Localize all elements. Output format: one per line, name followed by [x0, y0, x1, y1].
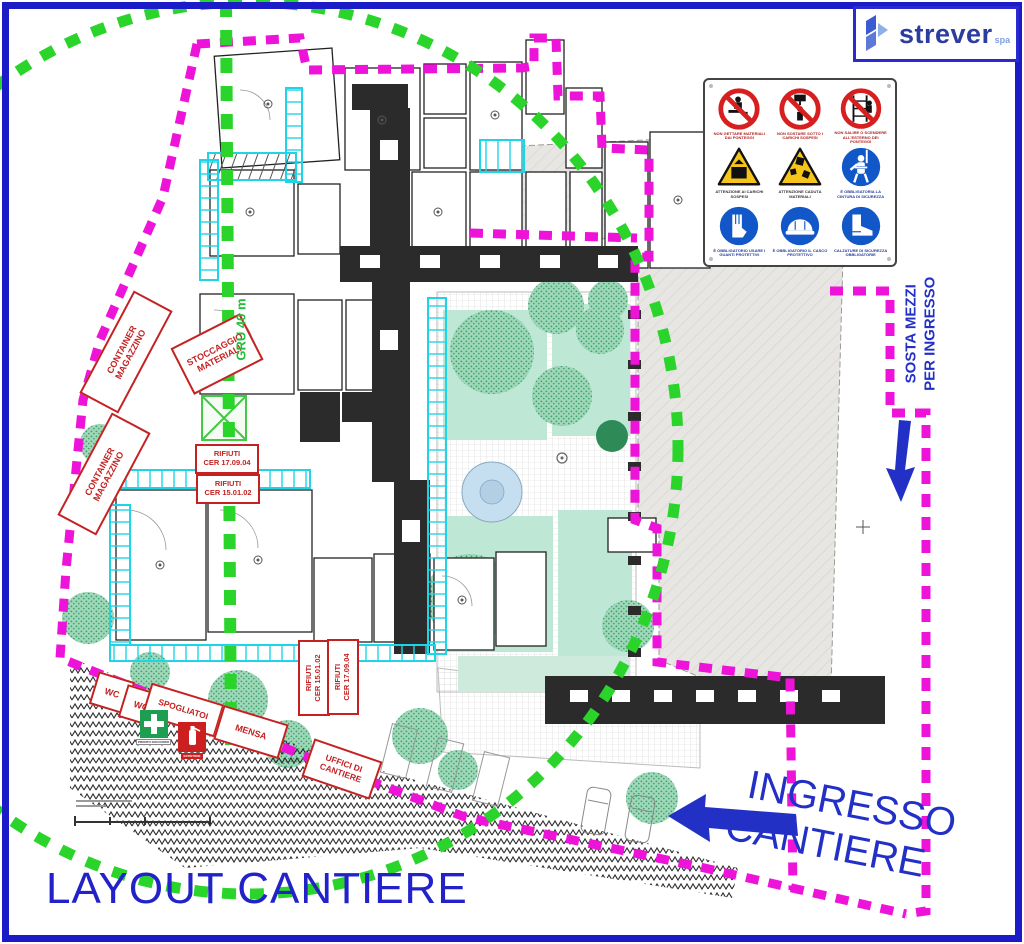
label-line: SOSTA MEZZI [902, 271, 921, 397]
sign-caption: ATTENZIONE CADUTA MATERIALI [771, 190, 829, 199]
safety-signs-panel: NON GETTARE MATERIALI DAI PONTEGGI NON S… [703, 78, 897, 267]
label-line: MENSA [234, 722, 268, 741]
label-rifiuti-17-09-04-b: RIFIUTI CER 17.09.04 [327, 639, 359, 715]
mandatory-gloves-icon [716, 203, 762, 249]
label-line: WC [103, 686, 120, 700]
fountain-pool [462, 462, 522, 522]
sign-caption: CALZATURE DI SICUREZZA OBBLIGATORIE [832, 249, 890, 258]
sign-warn-falling-materials: ATTENZIONE CADUTA MATERIALI [770, 144, 831, 202]
first-aid-cross-icon [140, 710, 168, 738]
dark-tree [596, 420, 628, 452]
logo-suffix-text: spa [995, 35, 1011, 45]
sign-no-stand-under-loads: NON SOSTARE SOTTO I CARICHI SOSPESI [770, 86, 831, 144]
page-title: LAYOUT CANTIERE [46, 864, 468, 914]
label-line: CER 15.01.02 [314, 654, 323, 701]
label-gru-40m: GRU 40 m [234, 285, 249, 375]
sign-no-climb: NON SALIRE O SCENDERE ALL'ESTERNO DEI PO… [830, 86, 891, 144]
sign-warn-suspended-loads: ATTENZIONE AI CARICHI SOSPESI [709, 144, 770, 202]
sign-caption: È OBBLIGATORIA LA CINTURA DI SICUREZZA [832, 190, 890, 199]
survey-cross [856, 520, 870, 534]
parking-arrow [886, 420, 915, 502]
sign-caption: È OBBLIGATORIO USARE I GUANTI PROTETTIVI [710, 249, 768, 258]
label-rifiuti-17-09-04: RIFIUTI CER 17.09.04 [195, 444, 259, 474]
company-logo: strever spa [853, 6, 1019, 62]
first-aid-sign: PRONTO SOCCORSO [136, 710, 171, 745]
extinguisher-icon [178, 722, 206, 752]
logo-brand-text: strever [899, 19, 993, 50]
prohibition-suspended-load-icon [777, 86, 823, 132]
sign-gloves-required: È OBBLIGATORIO USARE I GUANTI PROTETTIVI [709, 203, 770, 261]
sign-caption: ATTENZIONE AI CARICHI SOSPESI [710, 190, 768, 199]
label-line: PER INGRESSO [921, 271, 940, 397]
label-sosta-mezzi: SOSTA MEZZI PER INGRESSO [902, 271, 940, 397]
prohibition-climb-icon [838, 86, 884, 131]
mandatory-helmet-icon [777, 203, 823, 249]
first-aid-label: PRONTO SOCCORSO [136, 739, 171, 745]
warning-loads-icon [716, 144, 762, 190]
label-line: CER 17.09.04 [203, 459, 250, 468]
label-line: CER 17.09.04 [343, 653, 352, 700]
strever-logo-icon [864, 15, 894, 53]
mandatory-harness-icon [838, 144, 884, 190]
mandatory-boots-icon [838, 203, 884, 249]
sign-caption: NON SOSTARE SOTTO I CARICHI SOSPESI [771, 132, 829, 141]
label-rifiuti-15-01-02: RIFIUTI CER 15.01.02 [196, 474, 260, 504]
label-rifiuti-15-01-02-b: RIFIUTI CER 15.01.02 [298, 640, 330, 716]
prohibition-throw-icon [716, 86, 762, 132]
sign-harness-required: È OBBLIGATORIA LA CINTURA DI SICUREZZA [830, 144, 891, 202]
label-line: CER 15.01.02 [204, 489, 251, 498]
warning-falling-material-icon [777, 144, 823, 190]
sign-caption: È OBBLIGATORIO IL CASCO PROTETTIVO [771, 249, 829, 258]
site-layout-drawing: CONTAINER MAGAZZINO CONTAINER MAGAZZINO … [0, 0, 1024, 944]
sign-helmet-required: È OBBLIGATORIO IL CASCO PROTETTIVO [770, 203, 831, 261]
extinguisher-sign: ESTINTORE [178, 722, 206, 759]
sign-caption: NON SALIRE O SCENDERE ALL'ESTERNO DEI PO… [832, 131, 890, 144]
extinguisher-label: ESTINTORE [181, 753, 202, 759]
sign-boots-required: CALZATURE DI SICUREZZA OBBLIGATORIE [830, 203, 891, 261]
sign-caption: NON GETTARE MATERIALI DAI PONTEGGI [710, 132, 768, 141]
sign-no-throw: NON GETTARE MATERIALI DAI PONTEGGI [709, 86, 770, 144]
label-line: GRU 40 m [234, 298, 249, 360]
